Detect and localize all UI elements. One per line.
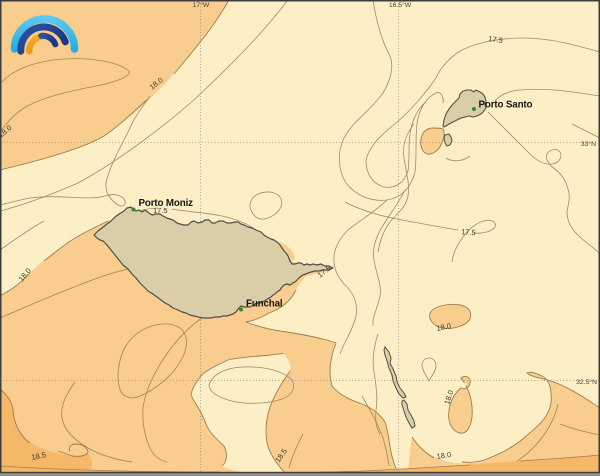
svg-text:33°N: 33°N [581,140,596,148]
svg-text:32.5°N: 32.5°N [576,378,597,386]
svg-text:17.5: 17.5 [461,227,476,237]
svg-text:16.5°W: 16.5°W [389,1,412,9]
svg-text:Porto Santo: Porto Santo [479,100,533,111]
svg-text:17°W: 17°W [193,1,210,9]
svg-text:Funchal: Funchal [246,299,283,310]
svg-text:Porto Moniz: Porto Moniz [139,198,194,209]
